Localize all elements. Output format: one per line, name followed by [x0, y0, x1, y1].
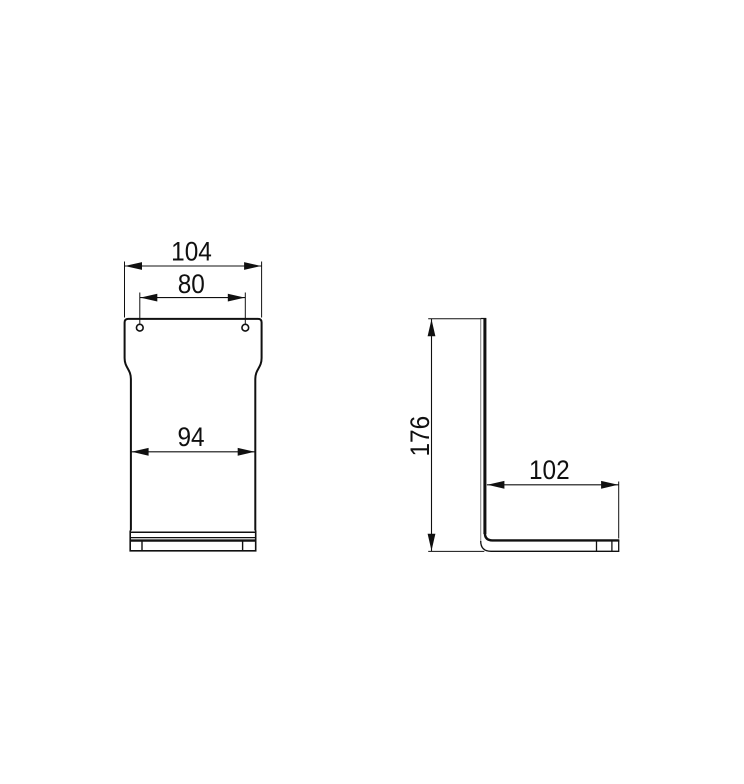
svg-text:176: 176	[406, 416, 435, 457]
svg-text:104: 104	[171, 238, 212, 267]
svg-text:94: 94	[177, 423, 204, 452]
svg-text:102: 102	[529, 456, 570, 485]
svg-text:80: 80	[178, 270, 205, 299]
